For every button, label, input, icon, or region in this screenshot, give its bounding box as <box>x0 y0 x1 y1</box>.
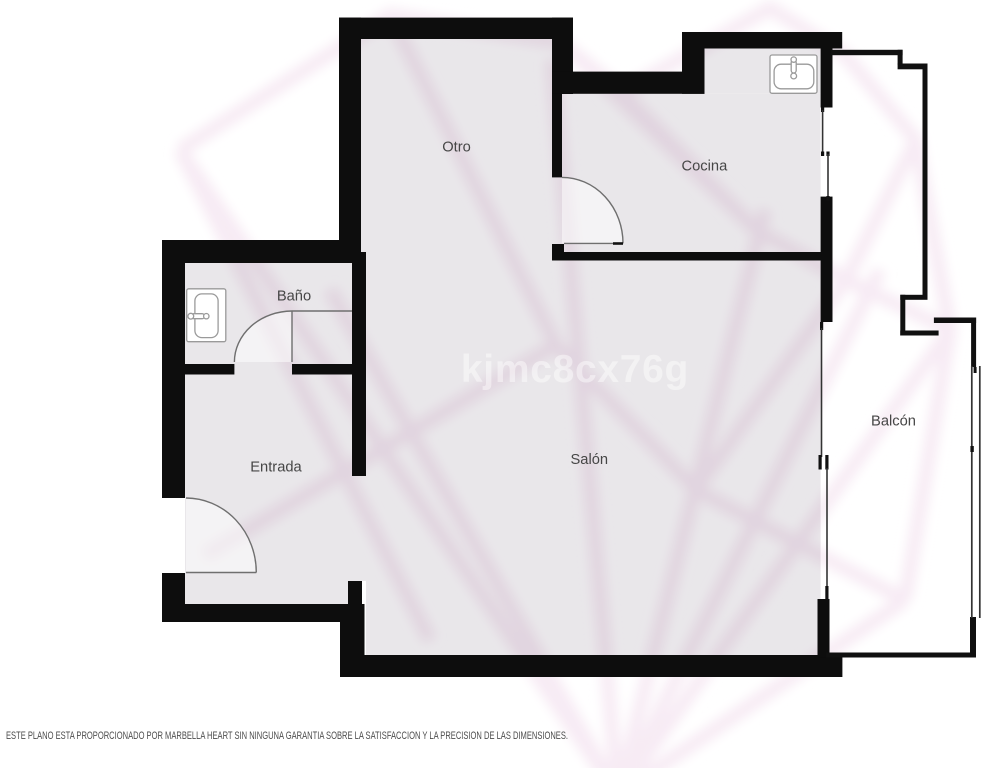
svg-text:Salón: Salón <box>571 452 609 468</box>
svg-text:ESTE PLANO ESTA PROPORCIONADO: ESTE PLANO ESTA PROPORCIONADO POR MARBEL… <box>6 730 568 742</box>
svg-text:Baño: Baño <box>277 288 311 304</box>
svg-text:Cocina: Cocina <box>682 158 729 174</box>
svg-text:Balcón: Balcón <box>871 414 916 430</box>
svg-text:Otro: Otro <box>442 139 471 155</box>
svg-text:Entrada: Entrada <box>250 460 302 476</box>
svg-text:kjmc8cx76g: kjmc8cx76g <box>461 348 689 391</box>
